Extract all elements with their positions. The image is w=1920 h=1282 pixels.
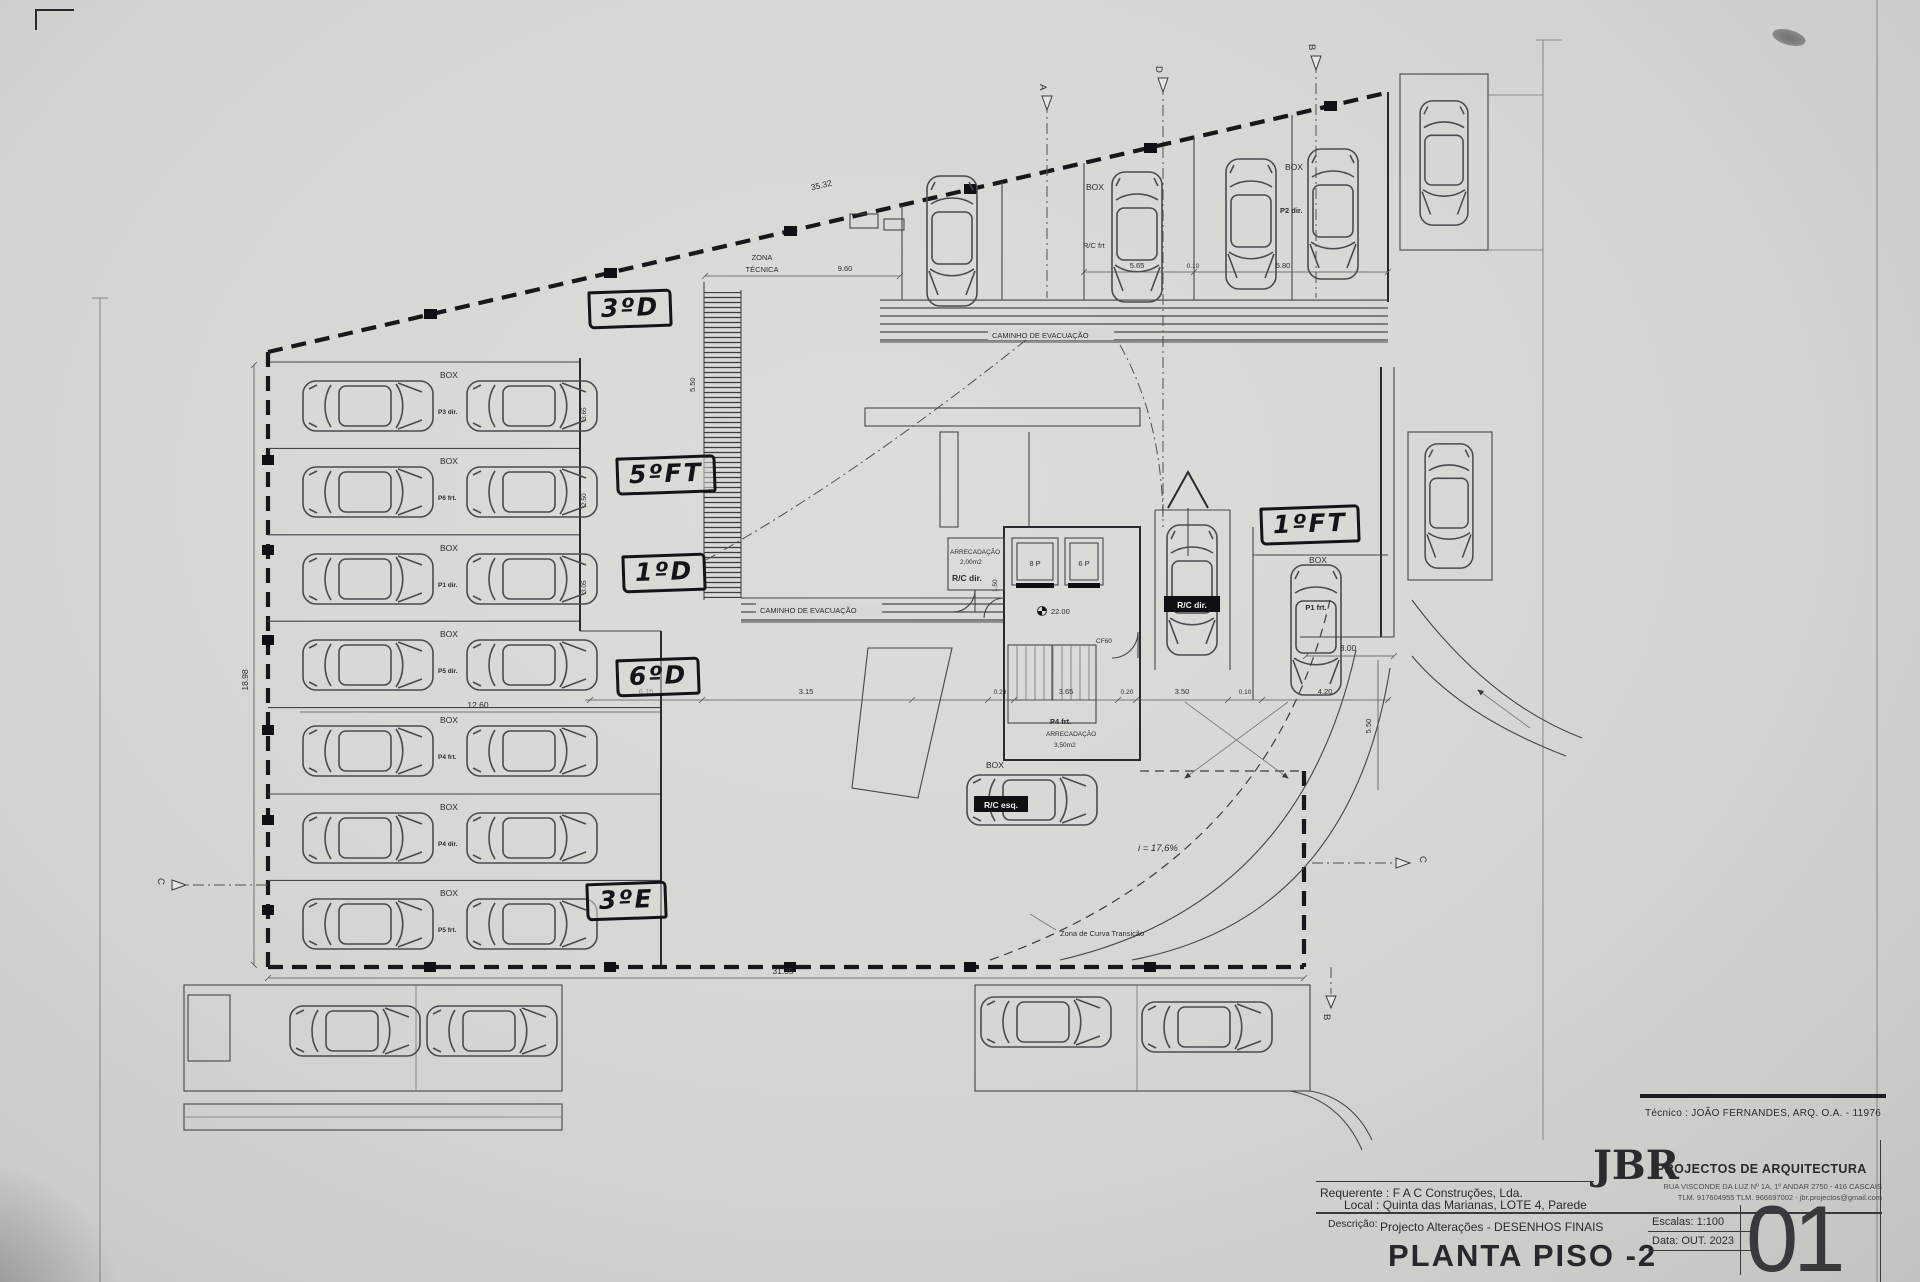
handwritten-unit-3d: 3ºD <box>587 289 673 329</box>
dim-chain: 0.10 <box>1239 689 1252 696</box>
dim-bottom-span: 31.35 <box>772 966 794 976</box>
title-block: JBR PROJECTOS DE ARQUITECTURA RUA VISCON… <box>1316 1140 1882 1282</box>
dim-chain: 3.65 <box>1059 687 1074 696</box>
dim-bay-gap: 0.10 <box>1187 263 1200 270</box>
level-value: 22.00 <box>1051 607 1070 616</box>
dim-right-offset: 3.00 <box>1340 643 1357 653</box>
floor-plan-photo: BOX BOX BOX BOX BOX BOX BOX P3 dir. P6 f… <box>0 0 1920 1282</box>
handwritten-unit-6d: 6ºD <box>615 657 701 697</box>
box-label: BOX <box>1309 555 1327 565</box>
outside-parking <box>184 985 1372 1150</box>
car-rc-esq-label: R/C esq. <box>984 800 1018 810</box>
dim-right-height: 5.50 <box>1364 719 1373 734</box>
bottom-inside-parking: BOX R/C esq. <box>967 760 1097 825</box>
parked-cars-left <box>303 381 597 949</box>
dim-core-side: 1.50 <box>992 579 999 592</box>
arrecadacao-label: ARRECADAÇÃO <box>1046 729 1096 738</box>
building-core: 8 P 6 P 22.00 CF60 P4 frt. ARRECADAÇÃO 3… <box>865 408 1140 760</box>
box-label: BOX <box>440 629 458 639</box>
handwritten-unit-1ft: 1ºFT <box>1259 504 1360 545</box>
zona-tecnica: ZONA TÉCNICA 9.60 35.32 5.50 <box>688 178 1002 600</box>
box-label: BOX <box>440 802 458 812</box>
stall-code: P1 dir. <box>438 582 458 589</box>
dim-left-span: 12.60 <box>467 700 489 710</box>
stall-code: P6 frt. <box>438 495 457 502</box>
sheet-number: 01 <box>1746 1202 1841 1275</box>
marker-b-bottom: B <box>1321 1014 1332 1020</box>
marker-d: D <box>1153 66 1164 73</box>
drawing-title: PLANTA PISO -2 <box>1388 1238 1657 1274</box>
ramp-slope-label: i = 17,6% <box>1138 843 1178 854</box>
stall-code: P5 dir. <box>438 668 458 675</box>
ramp-area: i = 17,6% Zona de Curva Transição <box>706 340 1390 960</box>
dim-ramp-width: 5.50 <box>688 377 697 392</box>
marker-b-top: B <box>1306 44 1317 50</box>
dim-bay-b: 5.80 <box>1276 261 1291 270</box>
stall-rc-frt: R/C frt <box>1083 241 1106 250</box>
box-label: BOX <box>440 370 458 380</box>
left-parking-block: BOX BOX BOX BOX BOX BOX BOX P3 dir. P6 f… <box>268 358 661 967</box>
arrecadacao-label: ARRECADAÇÃO <box>950 547 1000 556</box>
descricao-label: Descrição: <box>1328 1218 1378 1230</box>
dim-top-edge: 35.32 <box>810 178 833 193</box>
dim-chain: 3.50 <box>1175 687 1190 696</box>
stall-dim: 3.05 <box>581 580 588 593</box>
outside-right <box>1400 74 1582 756</box>
stall-code: P4 dir. <box>438 841 458 848</box>
firm-name: PROJECTOS DE ARQUITECTURA <box>1656 1162 1867 1176</box>
box-label: BOX <box>986 760 1004 770</box>
box-label: BOX <box>440 888 458 898</box>
zona-tecnica-label: TÉCNICA <box>746 265 779 274</box>
zona-tecnica-label: ZONA <box>752 253 773 262</box>
lift-6p-label: 6 P <box>1078 559 1089 568</box>
caminho-evacuacao-label: CAMINHO DE EVACUAÇÃO <box>992 331 1089 340</box>
handwritten-unit-1d: 1ºD <box>621 553 707 593</box>
marker-c-right: C <box>1417 856 1428 863</box>
dim-chain: 4.20 <box>1318 687 1333 696</box>
dim-zona: 9.60 <box>838 264 853 273</box>
local: Local : Quinta das Marianas, LOTE 4, Par… <box>1344 1198 1587 1212</box>
box-label: BOX <box>1285 162 1303 172</box>
marker-c-left: C <box>155 878 166 885</box>
marker-a: A <box>1037 84 1048 91</box>
box-label: BOX <box>440 715 458 725</box>
stall-code: P4 frt. <box>438 754 457 761</box>
arrecadacao-area: 2,00m2 <box>960 559 982 566</box>
dim-left-height: 18.98 <box>240 669 250 691</box>
box-label: BOX <box>440 456 458 466</box>
lift-8p-label: 8 P <box>1029 559 1040 568</box>
handwritten-unit-3e: 3ºE <box>585 881 667 921</box>
curve-zone-label: Zona de Curva Transição <box>1060 929 1144 938</box>
stall-code: P3 dir. <box>438 409 458 416</box>
tecnico-box: Técnico : JOÃO FERNANDES, ARQ. O.A. - 11… <box>1640 1094 1886 1128</box>
car-rc-dir-label: R/C dir. <box>1177 600 1207 610</box>
stall-p4-frt: P4 frt. <box>1050 717 1071 726</box>
stall-code: P5 frt. <box>438 927 457 934</box>
dim-bay-a: 5.65 <box>1130 261 1145 270</box>
data: Data: OUT. 2023 <box>1652 1235 1734 1247</box>
arrecadacao-area: 3,50m2 <box>1054 742 1076 749</box>
dim-chain: 0.20 <box>1121 689 1134 696</box>
dim-chain: 3.15 <box>799 687 814 696</box>
caminho-evacuacao-label: CAMINHO DE EVACUAÇÃO <box>760 606 857 615</box>
room-rc-dir: R/C dir. <box>952 573 982 583</box>
section-markers: A D B C C B <box>155 44 1428 1020</box>
escala: Escalas: 1:100 <box>1652 1216 1724 1228</box>
stair <box>1008 645 1096 723</box>
descricao: Projecto Alterações - DESENHOS FINAIS <box>1380 1220 1603 1234</box>
stall-dim: 3.65 <box>581 407 588 420</box>
stall-p2-dir: P2 dir. <box>1280 206 1303 215</box>
box-label: BOX <box>440 543 458 553</box>
top-parking-bays: BOX BOX R/C frt P2 dir. 5.65 0.10 5.80 <box>880 115 1391 306</box>
car-p1-frt-label: P1 frt. <box>1305 603 1326 612</box>
garage-boundary <box>262 92 1394 972</box>
stall-dim: 2.50 <box>581 493 588 506</box>
handwritten-unit-5ft: 5ºFT <box>615 454 716 495</box>
door-cf60-label: CF60 <box>1096 638 1112 645</box>
dim-chain: 0.29 <box>994 689 1007 696</box>
box-label: BOX <box>1086 182 1104 192</box>
dimensions: 6.15 3.15 0.29 3.65 0.20 3.50 0.10 4.20 … <box>240 362 1397 981</box>
plan-drawing: BOX BOX BOX BOX BOX BOX BOX P3 dir. P6 f… <box>0 0 1920 1282</box>
